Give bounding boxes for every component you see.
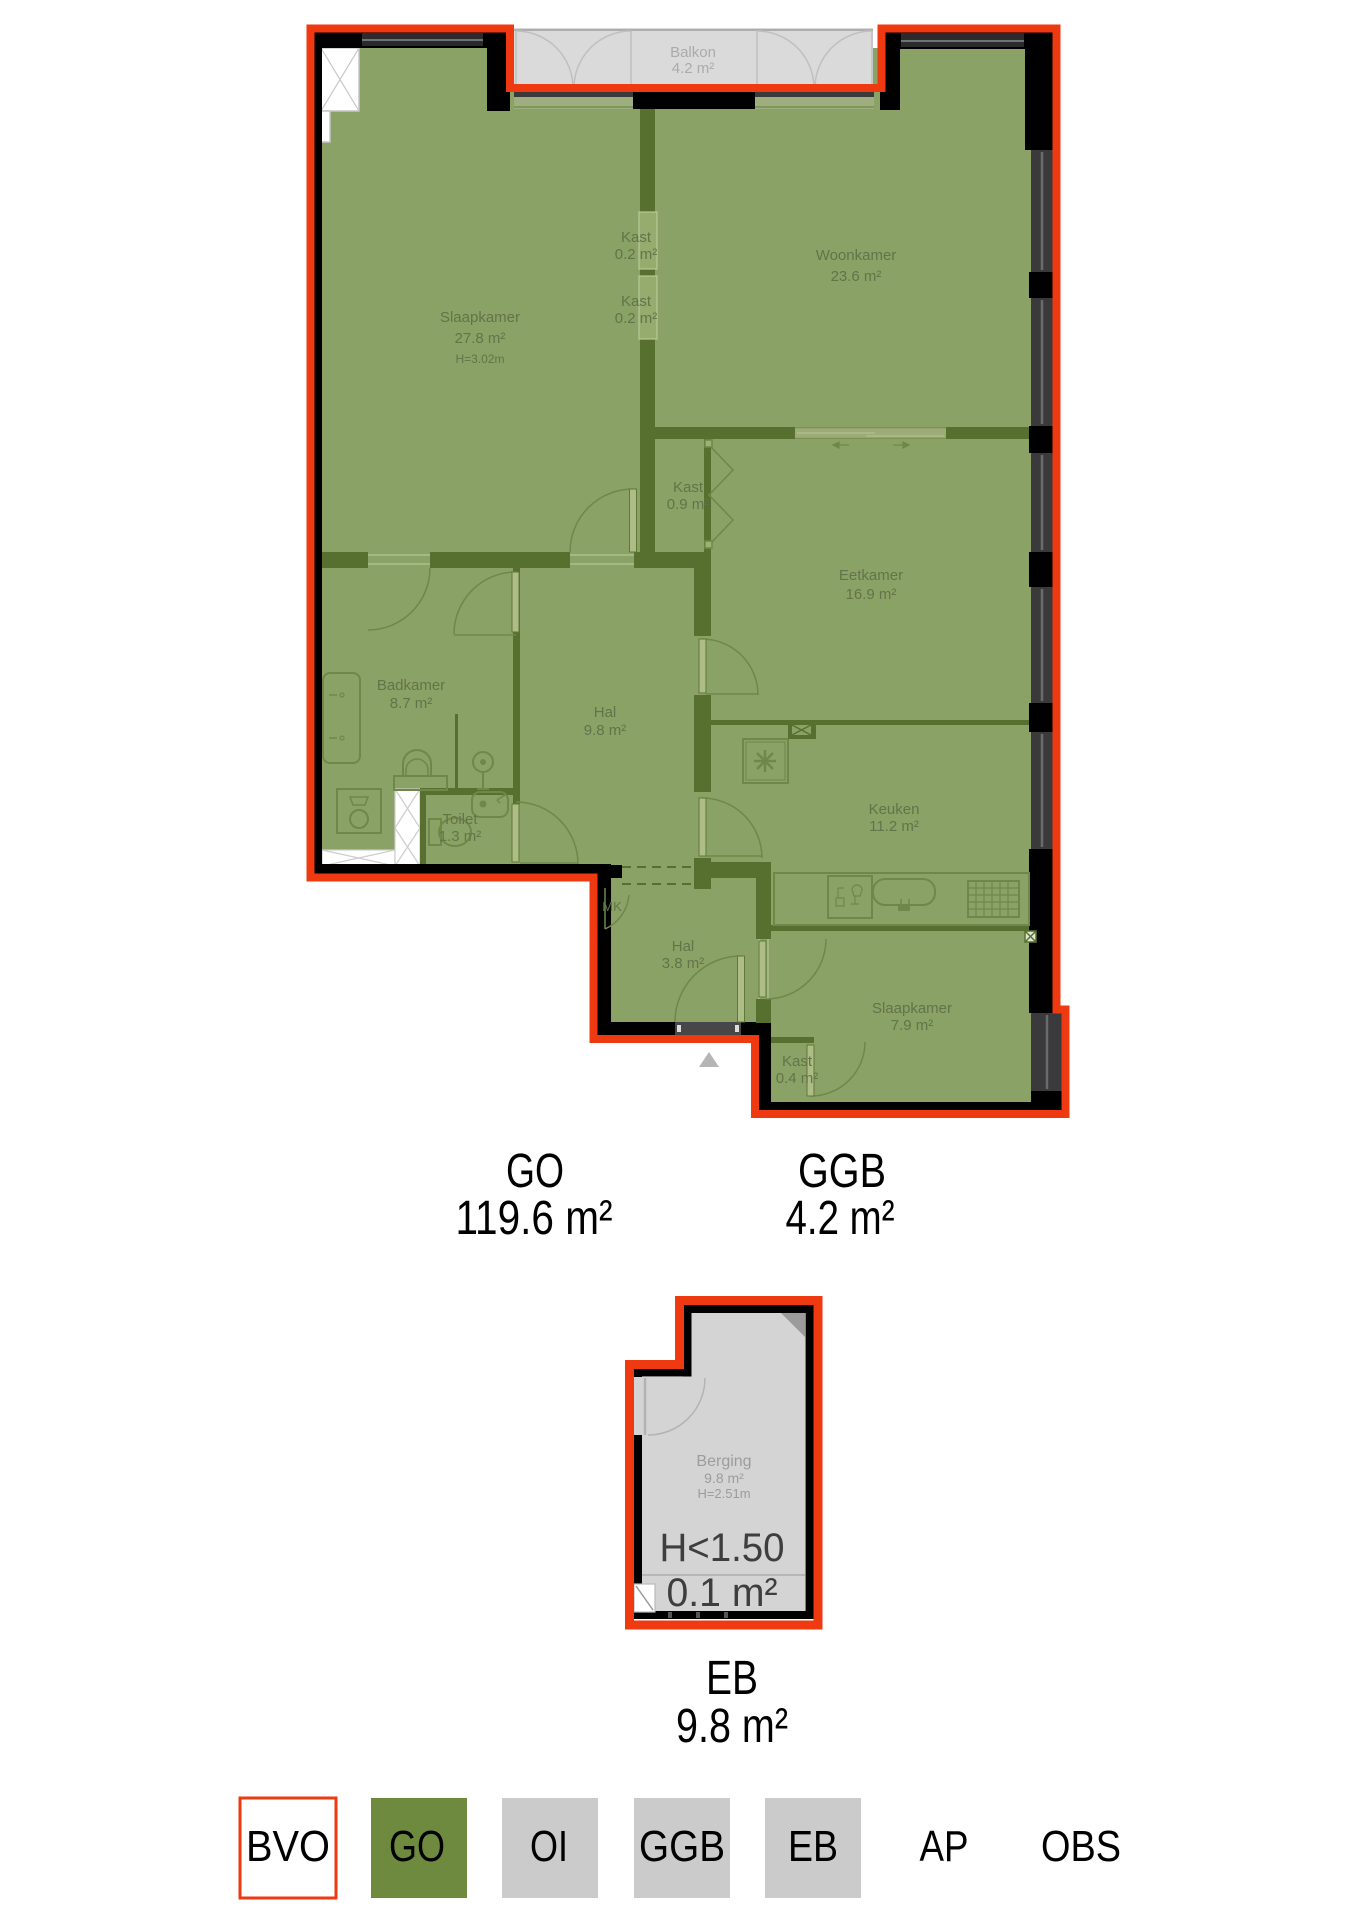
svg-text:9.8 m²: 9.8 m² bbox=[704, 1470, 744, 1486]
svg-text:16.9 m²: 16.9 m² bbox=[846, 586, 897, 603]
svg-text:GGB: GGB bbox=[798, 1145, 886, 1198]
svg-text:MK: MK bbox=[602, 899, 622, 914]
svg-text:Badkamer: Badkamer bbox=[377, 677, 445, 694]
svg-text:Balkon: Balkon bbox=[670, 44, 716, 61]
svg-text:EB: EB bbox=[788, 1822, 838, 1871]
svg-text:1.3 m²: 1.3 m² bbox=[439, 828, 482, 845]
svg-text:3.8 m²: 3.8 m² bbox=[662, 955, 705, 972]
svg-text:OBS: OBS bbox=[1041, 1822, 1121, 1871]
svg-text:Eetkamer: Eetkamer bbox=[839, 567, 903, 584]
svg-text:23.6 m²: 23.6 m² bbox=[831, 268, 882, 285]
svg-text:119.6 m²: 119.6 m² bbox=[456, 1192, 613, 1245]
svg-text:Toilet: Toilet bbox=[442, 811, 478, 828]
svg-text:EB: EB bbox=[706, 1652, 758, 1705]
svg-text:OI: OI bbox=[530, 1822, 568, 1871]
svg-text:0.4 m²: 0.4 m² bbox=[776, 1070, 819, 1087]
svg-text:Kast: Kast bbox=[621, 229, 652, 246]
svg-text:AP: AP bbox=[920, 1822, 969, 1871]
svg-text:Woonkamer: Woonkamer bbox=[816, 247, 897, 264]
svg-text:4.2 m²: 4.2 m² bbox=[672, 60, 715, 77]
svg-text:9.8 m²: 9.8 m² bbox=[676, 1700, 788, 1753]
svg-text:Slaapkamer: Slaapkamer bbox=[872, 1000, 952, 1017]
svg-text:0.1 m²: 0.1 m² bbox=[667, 1571, 778, 1615]
svg-text:11.2 m²: 11.2 m² bbox=[869, 818, 919, 835]
svg-text:Slaapkamer: Slaapkamer bbox=[440, 309, 520, 326]
svg-text:BVO: BVO bbox=[246, 1822, 330, 1871]
svg-text:Kast: Kast bbox=[782, 1053, 813, 1070]
svg-text:H=2.51m: H=2.51m bbox=[697, 1486, 750, 1501]
svg-text:0.2 m²: 0.2 m² bbox=[615, 246, 658, 263]
svg-text:9.8 m²: 9.8 m² bbox=[584, 722, 627, 739]
svg-text:Kast: Kast bbox=[621, 293, 652, 310]
svg-text:8.7 m²: 8.7 m² bbox=[390, 695, 433, 712]
svg-text:H<1.50: H<1.50 bbox=[660, 1526, 785, 1570]
svg-text:Kast: Kast bbox=[673, 479, 704, 496]
svg-text:Hal: Hal bbox=[594, 704, 617, 721]
svg-text:0.9 m²: 0.9 m² bbox=[667, 496, 710, 513]
svg-text:Berging: Berging bbox=[696, 1453, 751, 1470]
svg-text:GGB: GGB bbox=[639, 1822, 725, 1871]
svg-text:4.2 m²: 4.2 m² bbox=[786, 1192, 895, 1245]
svg-text:H=3.02m: H=3.02m bbox=[455, 352, 504, 366]
svg-text:27.8 m²: 27.8 m² bbox=[455, 330, 506, 347]
svg-text:0.2 m²: 0.2 m² bbox=[615, 310, 658, 327]
svg-text:7.9 m²: 7.9 m² bbox=[891, 1017, 934, 1034]
svg-text:GO: GO bbox=[506, 1145, 564, 1198]
svg-text:GO: GO bbox=[389, 1822, 445, 1871]
svg-text:Hal: Hal bbox=[672, 938, 695, 955]
svg-text:Keuken: Keuken bbox=[869, 801, 920, 818]
